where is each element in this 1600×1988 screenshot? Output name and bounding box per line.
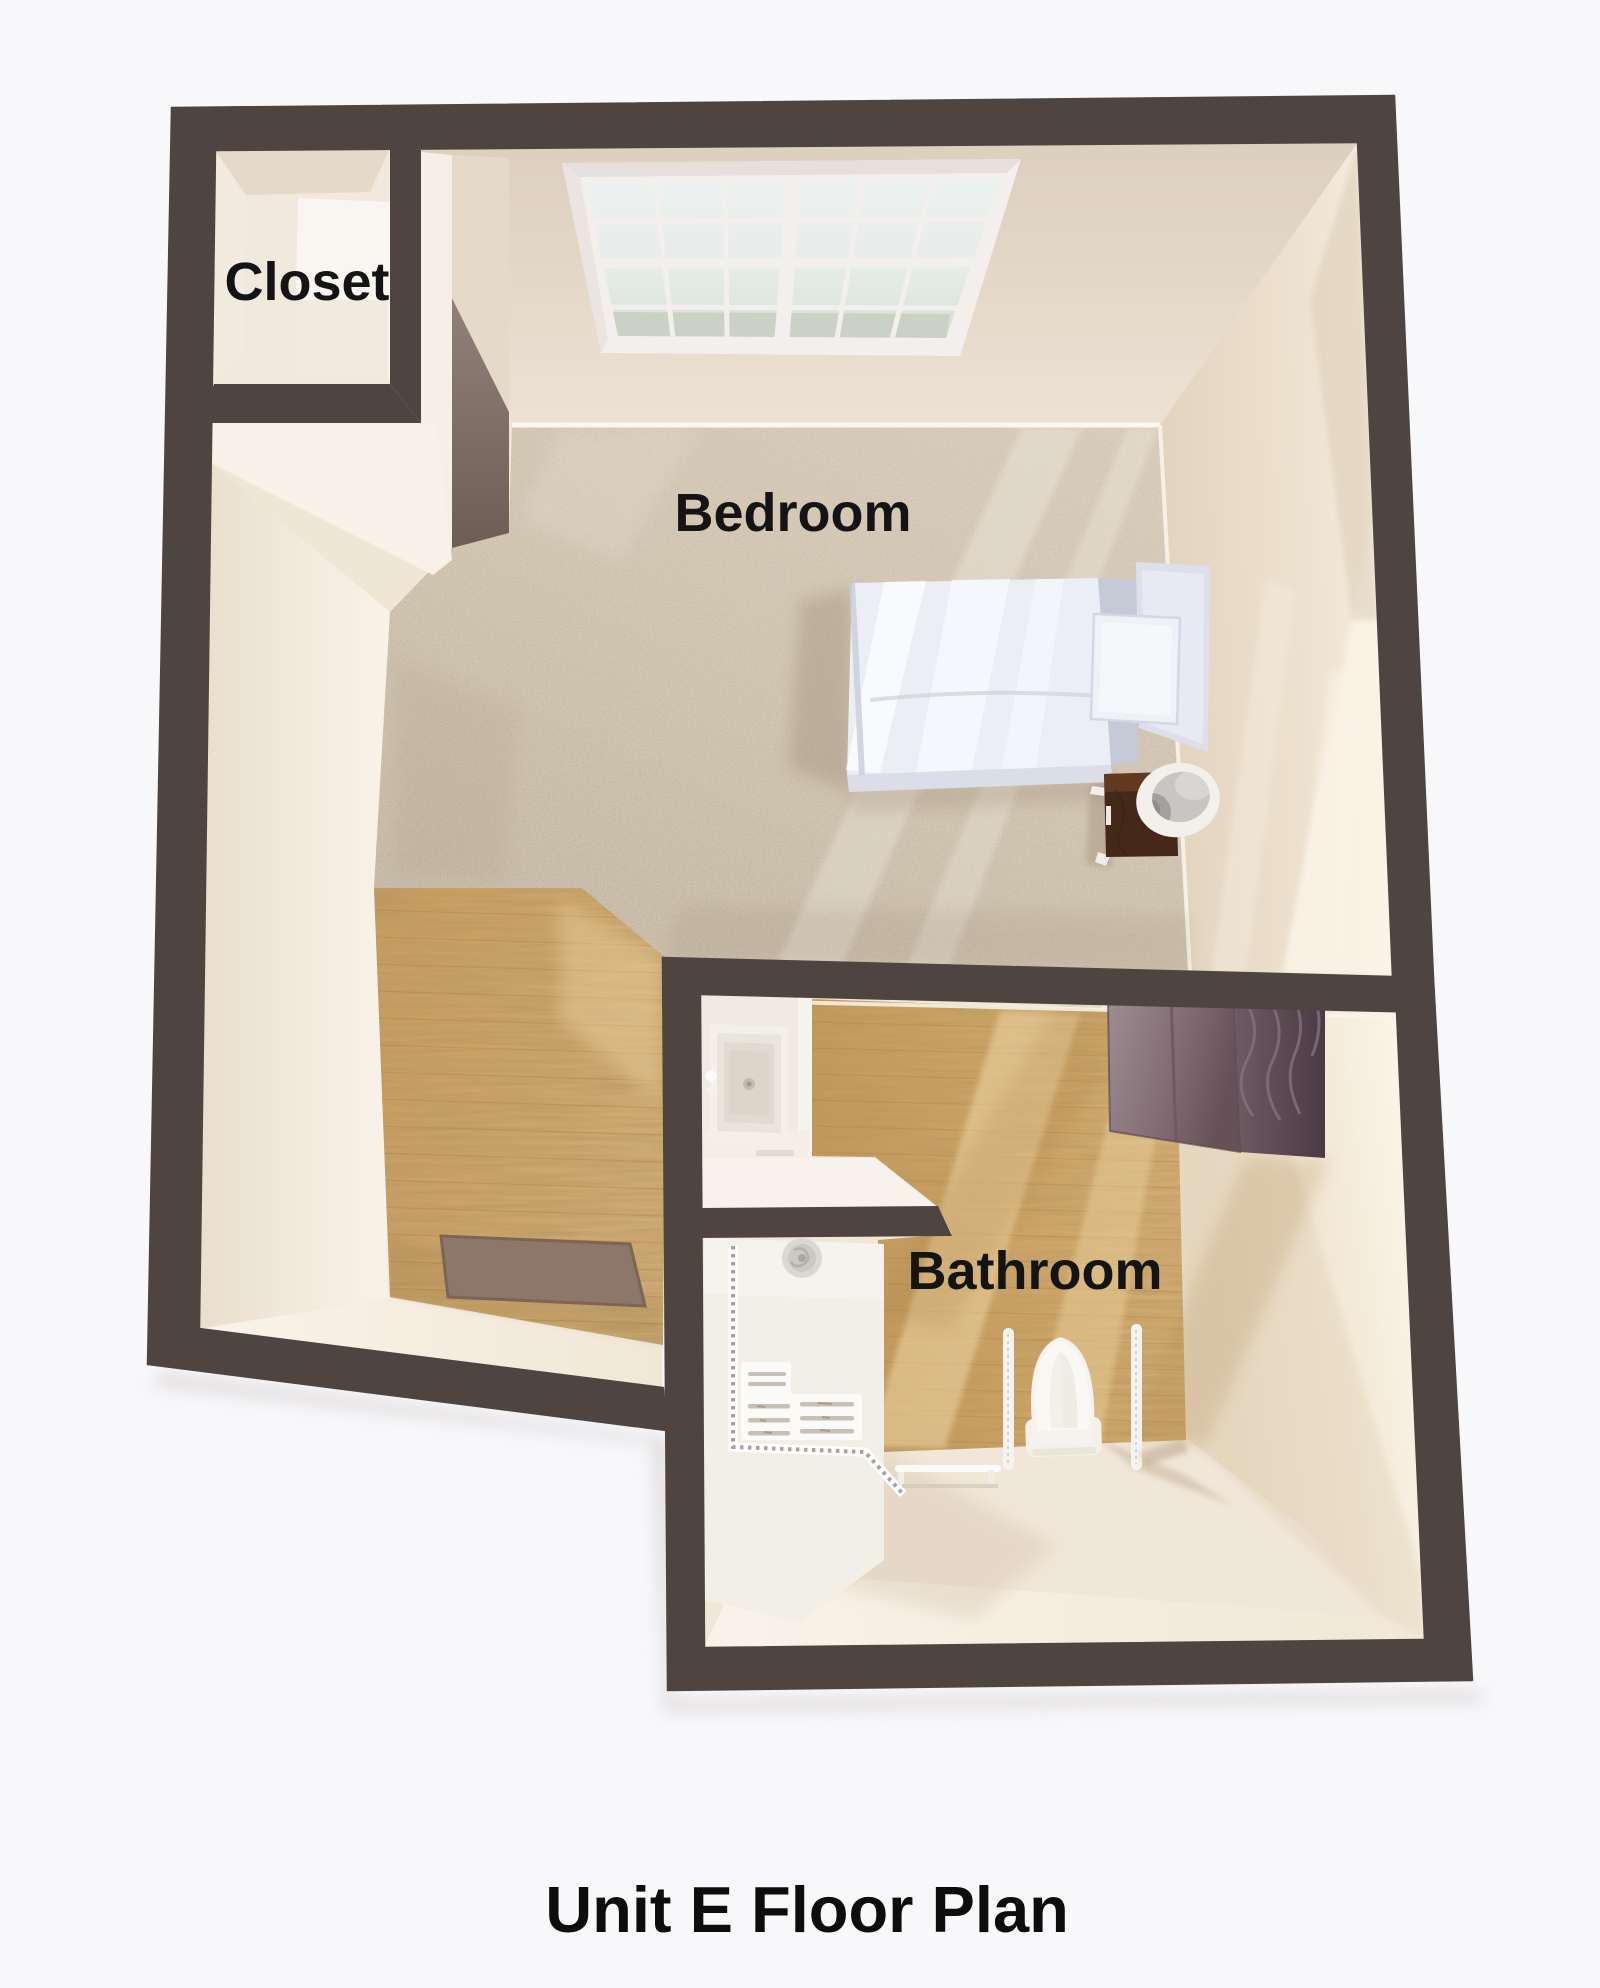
svg-text:Unit E Floor Plan: Unit E Floor Plan — [545, 1873, 1069, 1946]
svg-text:Closet: Closet — [224, 252, 389, 312]
svg-text:Bathroom: Bathroom — [908, 1241, 1163, 1301]
svg-text:Bedroom: Bedroom — [674, 483, 911, 543]
